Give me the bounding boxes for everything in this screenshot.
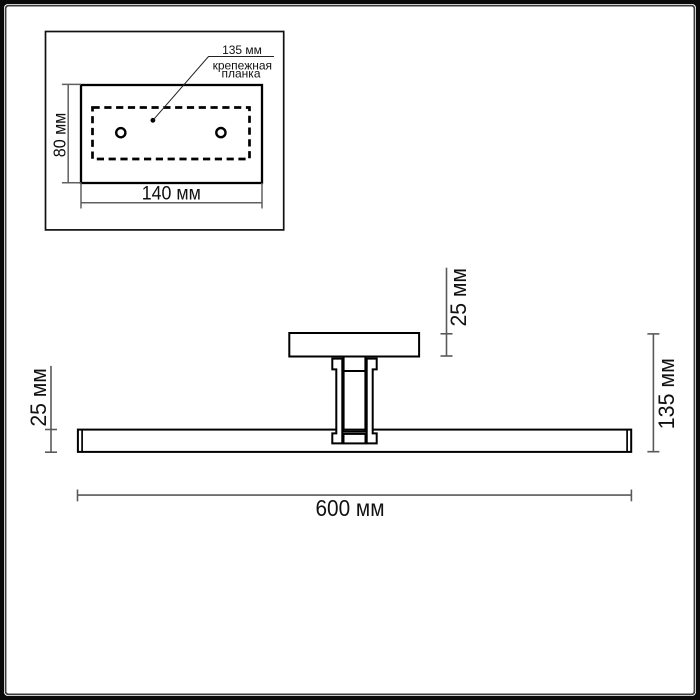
svg-text:140 мм: 140 мм: [142, 184, 201, 205]
svg-text:планка: планка: [222, 67, 261, 81]
svg-text:25 мм: 25 мм: [26, 368, 51, 427]
svg-text:80 мм: 80 мм: [50, 113, 70, 158]
svg-text:25 мм: 25 мм: [446, 268, 471, 327]
svg-text:600 мм: 600 мм: [316, 495, 385, 521]
svg-text:135 мм: 135 мм: [654, 358, 679, 429]
svg-text:135 мм: 135 мм: [222, 43, 262, 57]
